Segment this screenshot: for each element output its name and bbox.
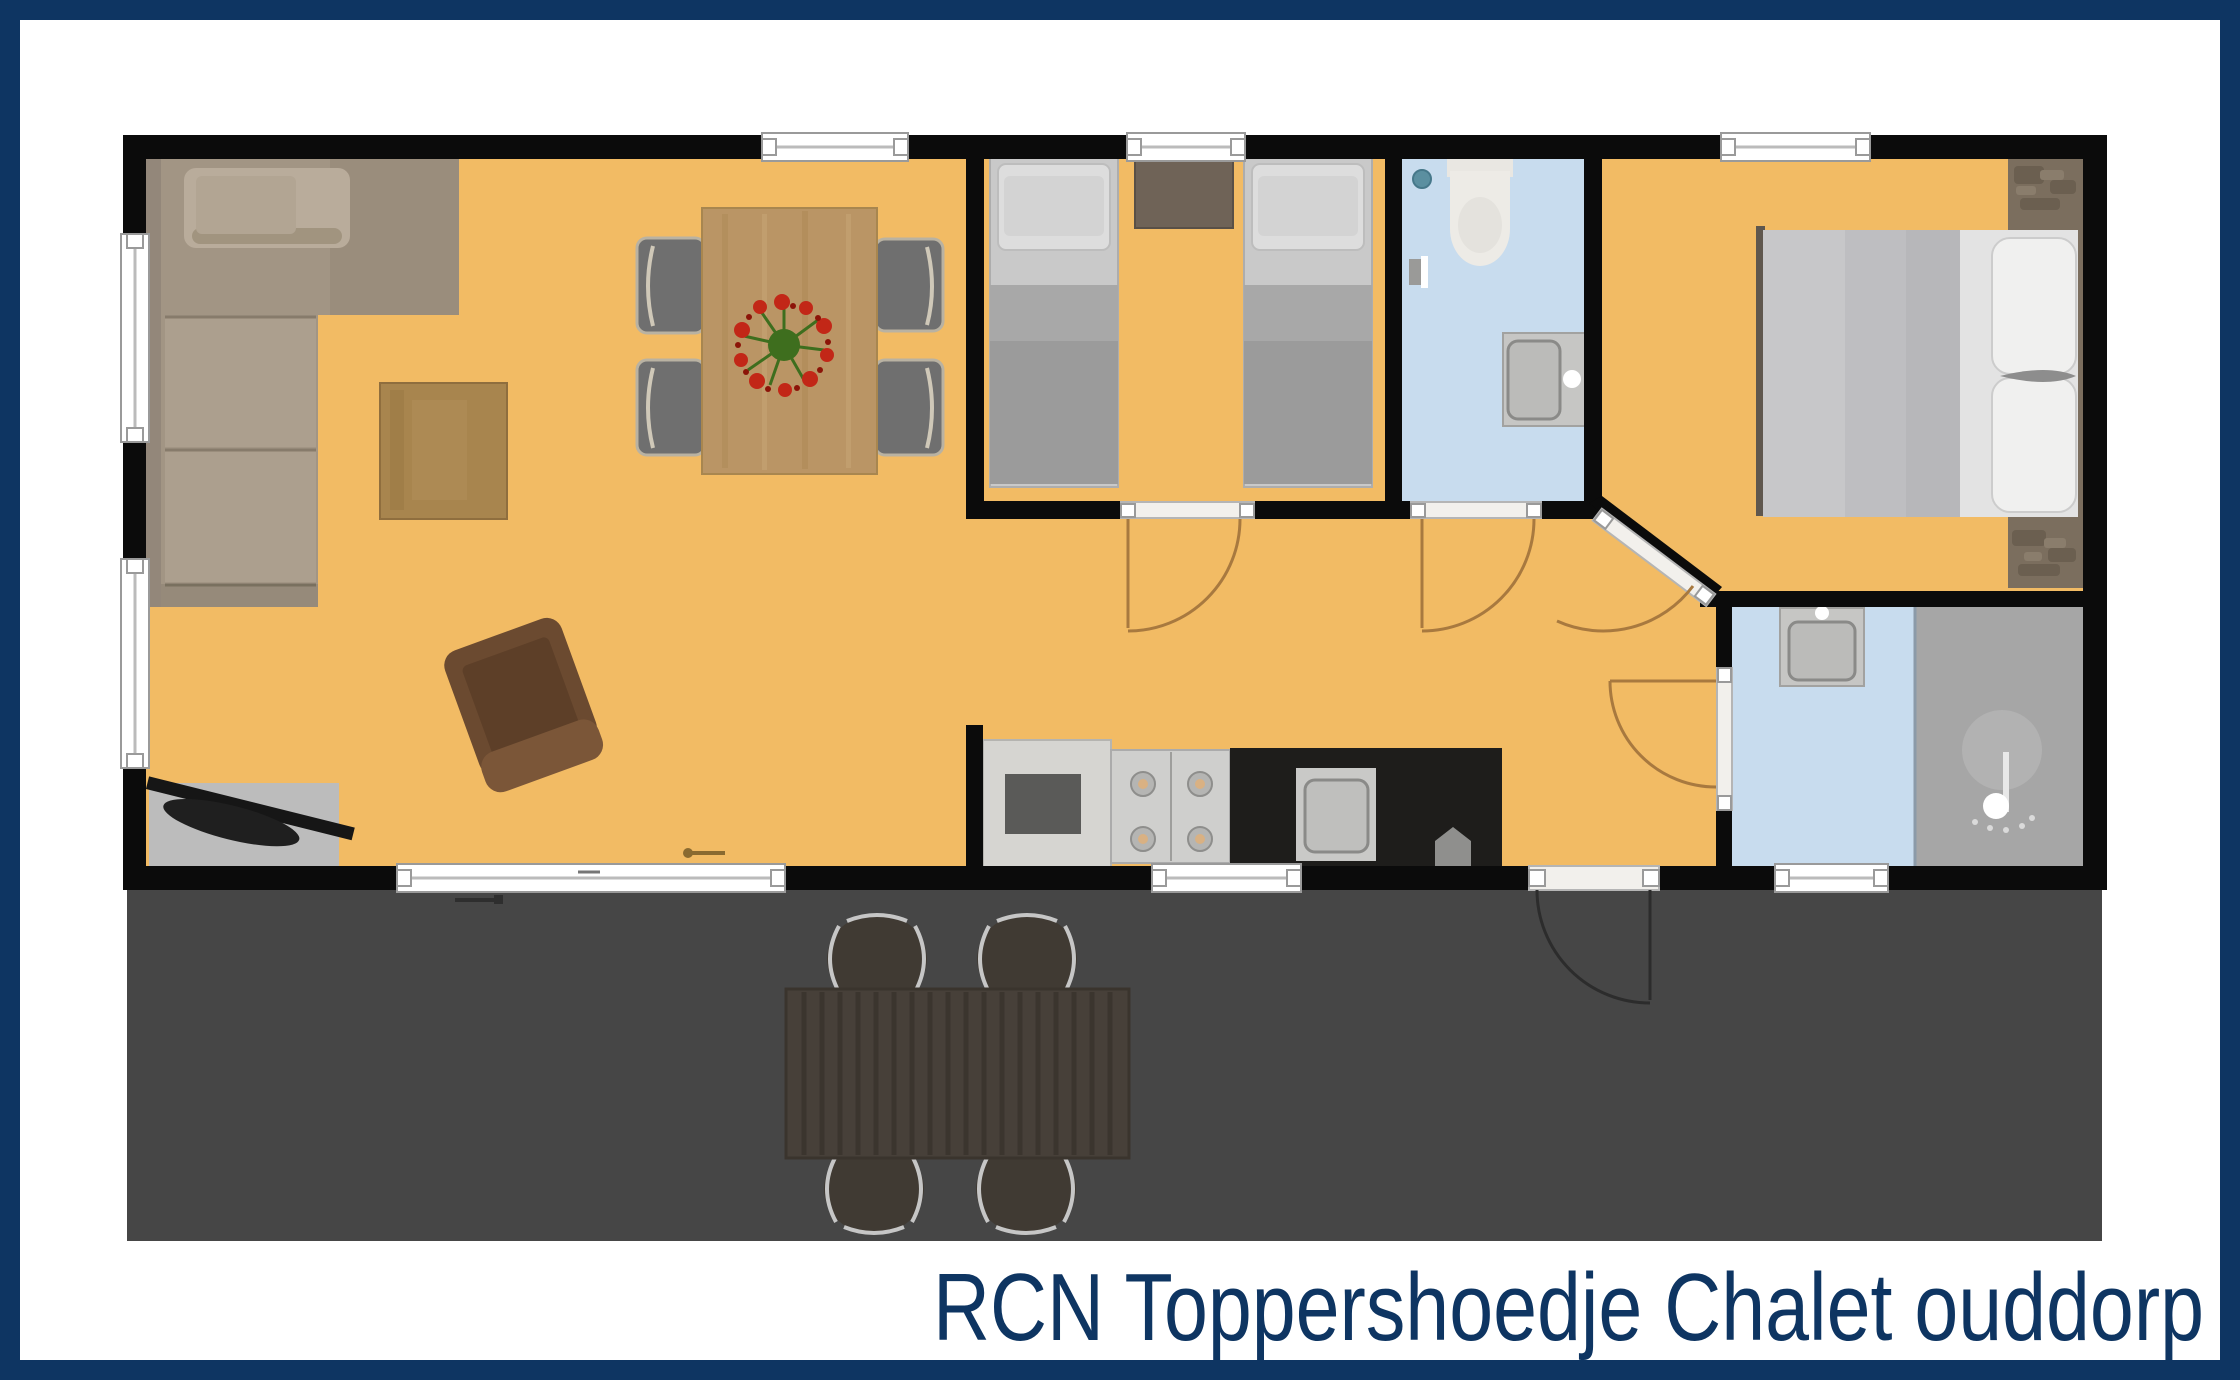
svg-text:RCN Toppershoedje Chalet ouddo: RCN Toppershoedje Chalet ouddorp: [933, 1254, 2204, 1361]
